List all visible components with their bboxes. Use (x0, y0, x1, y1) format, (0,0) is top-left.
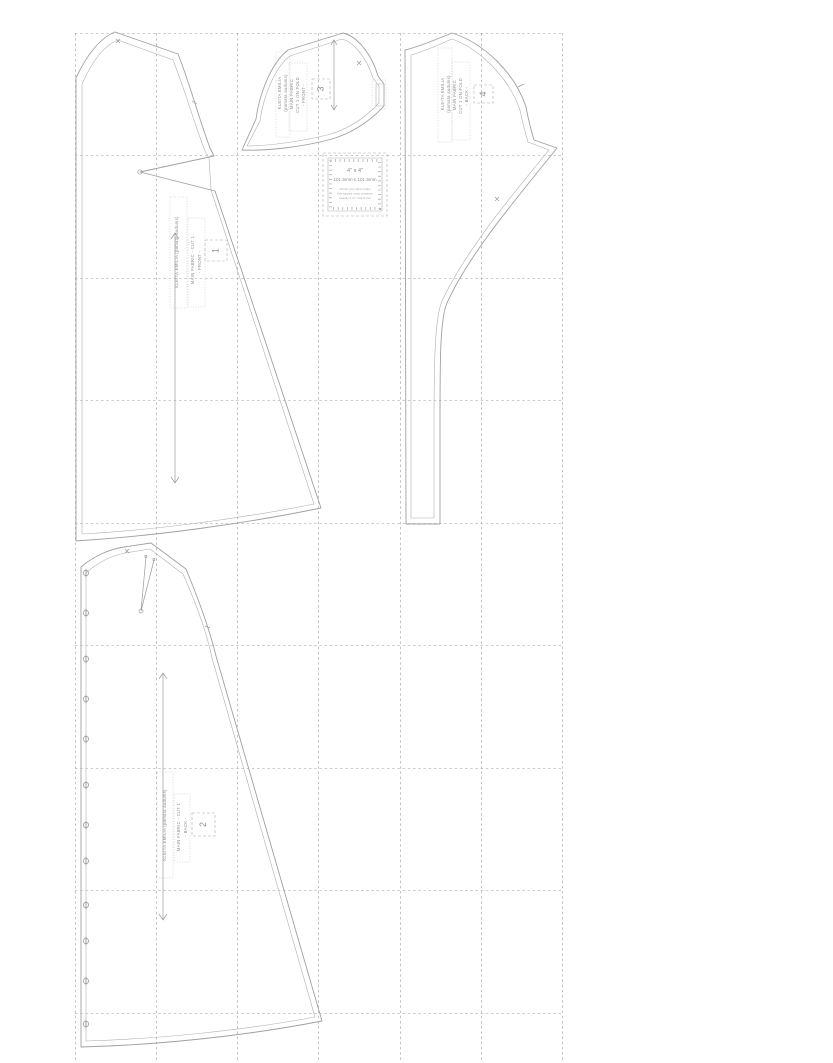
piece-1-cross-mark (116, 39, 120, 43)
test-square-note: Check your print scale: (339, 187, 371, 191)
piece-4-notch (518, 84, 524, 87)
page-grid (75, 33, 563, 1060)
piece-2-title: KLEITA EMILIA (pamata audums) (162, 789, 167, 861)
piece-3-part-label: - FRONT - (301, 84, 306, 107)
piece-4-part-label: - BACK - (464, 86, 469, 105)
piece-1-number: 1 (210, 248, 220, 253)
piece-2-cut-line (81, 543, 322, 1047)
test-square: 4" x 4" 101.5mm x 101.5mm Check your pri… (323, 153, 387, 216)
piece-3-cut-line (242, 33, 384, 150)
piece-2-seam-line (86, 549, 315, 1041)
piece-3-cross-mark (357, 61, 361, 65)
piece-4-title: KLEITA EMILIA (440, 78, 445, 111)
piece-3-subtitle: (pamata audums) (283, 74, 288, 112)
piece-1-part-label: - FRONT - (197, 251, 202, 274)
test-square-note: exactly 4 in / 101.5 mm (339, 196, 371, 200)
piece-3-facing: KLEITA EMILIA (pamata audums) MAIN FABRI… (242, 33, 386, 150)
piece-4-subtitle: (pamata audums) (446, 75, 451, 113)
piece-1-title: KLEITA EMILIA (pamata audums) (174, 216, 179, 288)
piece-3-fabric-label: MAIN FABRIC (289, 79, 294, 109)
piece-4-fabric-label: MAIN FABRIC (452, 80, 457, 110)
piece-4-number: 4 (478, 91, 488, 96)
test-square-title: 4" x 4" (347, 168, 363, 174)
pattern-sheet: KLEITA EMILIA (pamata audums) MAIN FABRI… (0, 0, 833, 1063)
piece-1-fabric-label: MAIN FABRIC - CUT 1 (190, 235, 195, 284)
piece-2-part-label: - BACK - (183, 817, 188, 836)
piece-2-back: KLEITA EMILIA (pamata audums) MAIN FABRI… (81, 543, 322, 1047)
test-square-note: this square must measure (337, 191, 373, 195)
piece-3-cut-label: CUT 1 ON FOLD (295, 77, 300, 113)
pattern-canvas: KLEITA EMILIA (pamata audums) MAIN FABRI… (0, 0, 833, 1063)
piece-2-fabric-label: MAIN FABRIC - CUT 1 (176, 802, 181, 851)
piece-4-cross-mark (495, 197, 499, 201)
piece-3-number: 3 (315, 86, 325, 91)
piece-3-fold-tab (376, 84, 384, 106)
piece-4-cut-label: CUT 1 ON FOLD (458, 78, 463, 114)
piece-2-shoulder-dart (139, 556, 155, 614)
piece-3-title: KLEITA EMILIA (277, 77, 282, 110)
piece-3-grainline-arrow (331, 40, 337, 110)
test-square-dimensions: 101.5mm x 101.5mm (333, 177, 376, 182)
piece-3-seam-line (247, 39, 379, 146)
piece-2-number: 2 (198, 822, 208, 827)
